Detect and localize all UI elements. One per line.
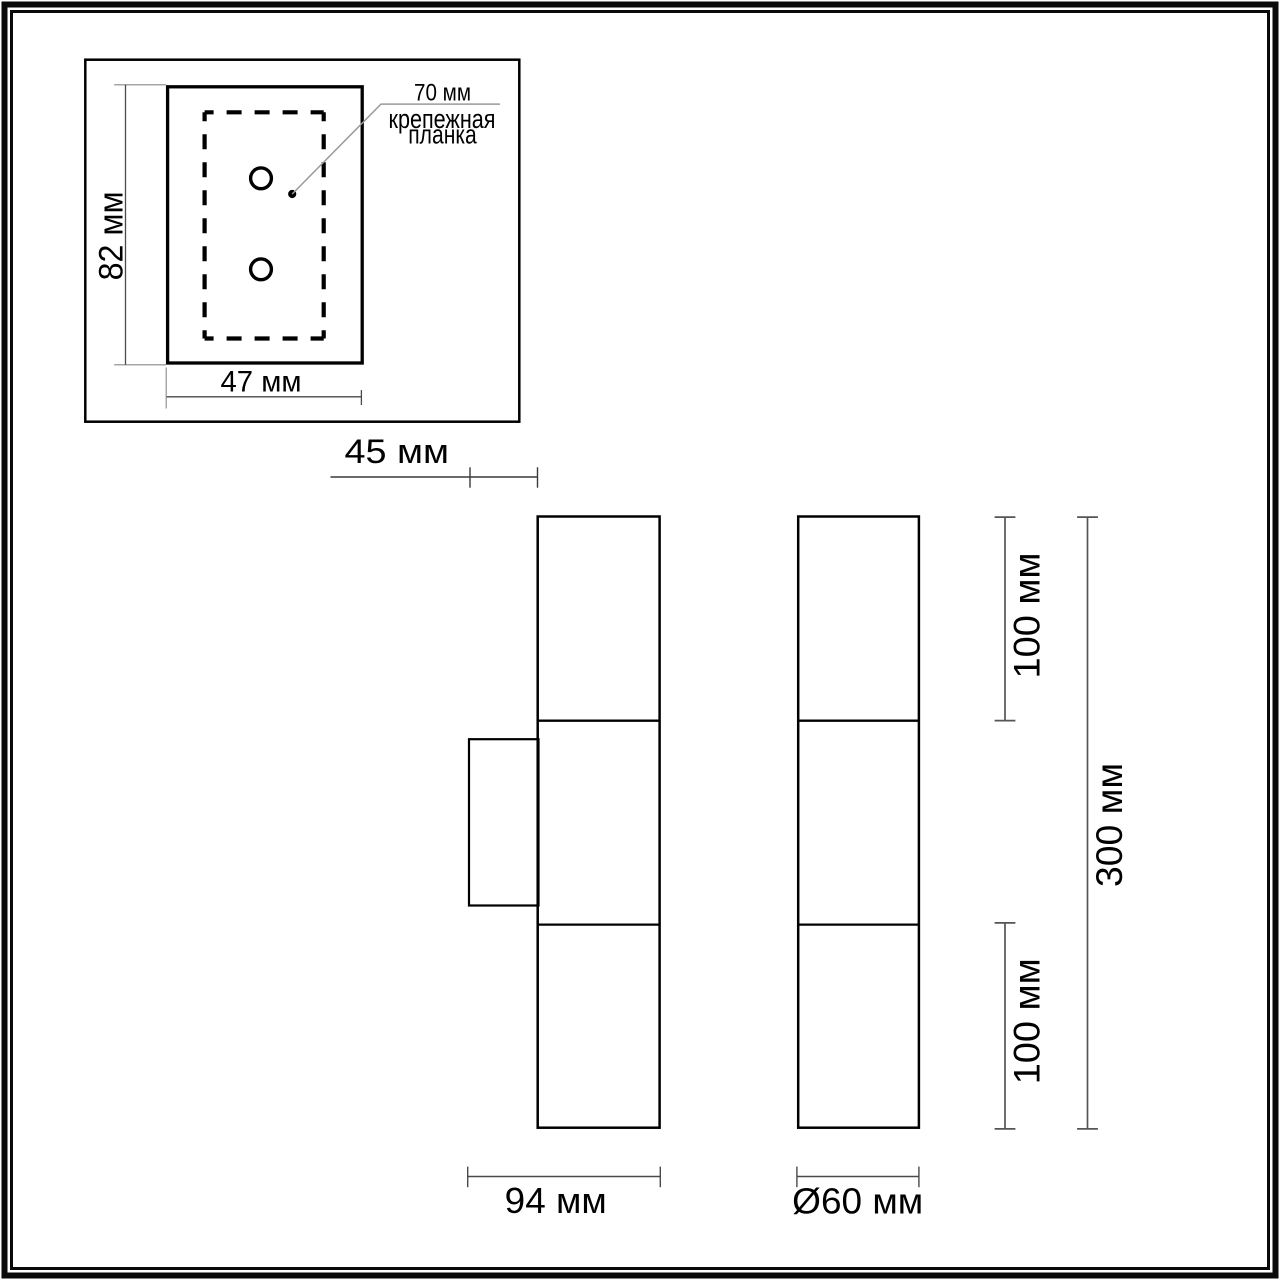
svg-text:47 мм: 47 мм — [221, 366, 302, 399]
svg-text:70 мм: 70 мм — [414, 80, 471, 107]
svg-text:100 мм: 100 мм — [1006, 958, 1048, 1084]
svg-text:100 мм: 100 мм — [1006, 553, 1048, 679]
svg-text:94 мм: 94 мм — [505, 1180, 607, 1221]
svg-text:82 мм: 82 мм — [93, 191, 131, 280]
svg-text:45 мм: 45 мм — [345, 433, 450, 471]
svg-text:300 мм: 300 мм — [1088, 763, 1130, 887]
svg-text:планка: планка — [408, 120, 477, 150]
svg-text:Ø60 мм: Ø60 мм — [792, 1181, 923, 1222]
